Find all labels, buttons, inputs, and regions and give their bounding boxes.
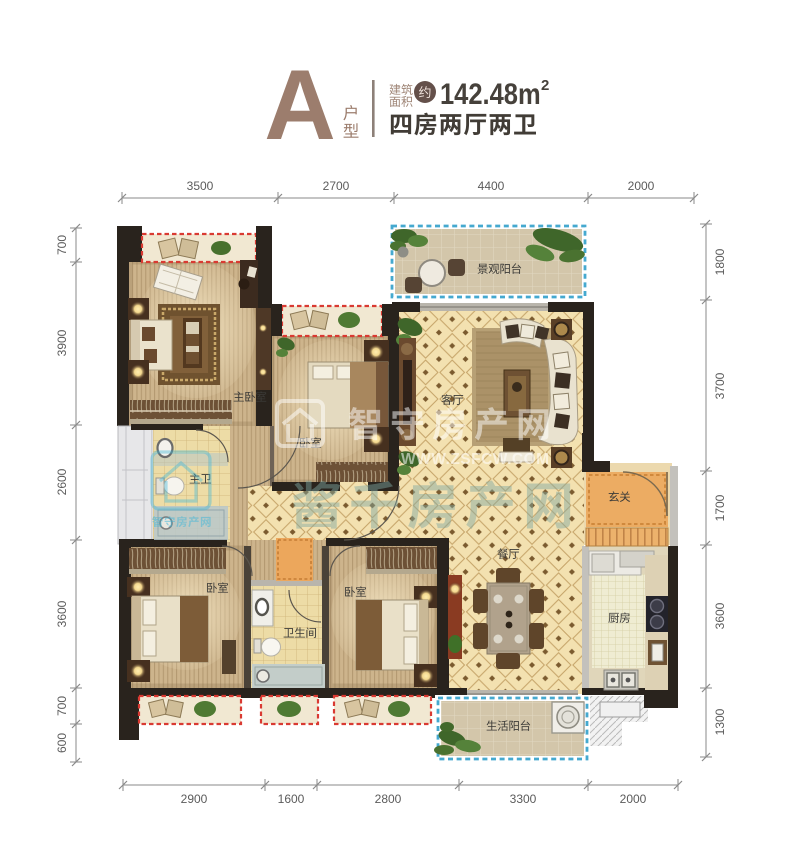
svg-text:3600: 3600 [55,600,69,627]
svg-text:3500: 3500 [187,179,214,193]
svg-text:1700: 1700 [713,494,727,521]
svg-text:700: 700 [55,235,69,255]
svg-text:2800: 2800 [375,792,402,806]
svg-text:1600: 1600 [278,792,305,806]
svg-text:3700: 3700 [713,372,727,399]
svg-text:2600: 2600 [55,468,69,495]
svg-text:WWW.ZSFCW.COM: WWW.ZSFCW.COM [401,451,550,468]
svg-text:142.48m: 142.48m [440,77,541,110]
svg-text:700: 700 [55,696,69,716]
svg-text:2700: 2700 [323,179,350,193]
svg-text:1800: 1800 [713,248,727,275]
svg-text:2: 2 [541,77,549,94]
svg-text:4400: 4400 [478,179,505,193]
svg-text:3900: 3900 [55,329,69,356]
svg-text:2000: 2000 [620,792,647,806]
svg-text:A: A [264,49,336,160]
svg-text:2000: 2000 [628,179,655,193]
svg-text:3600: 3600 [713,602,727,629]
svg-text:600: 600 [55,733,69,753]
svg-text:2900: 2900 [181,792,208,806]
svg-text:3300: 3300 [510,792,537,806]
svg-text:1300: 1300 [713,708,727,735]
